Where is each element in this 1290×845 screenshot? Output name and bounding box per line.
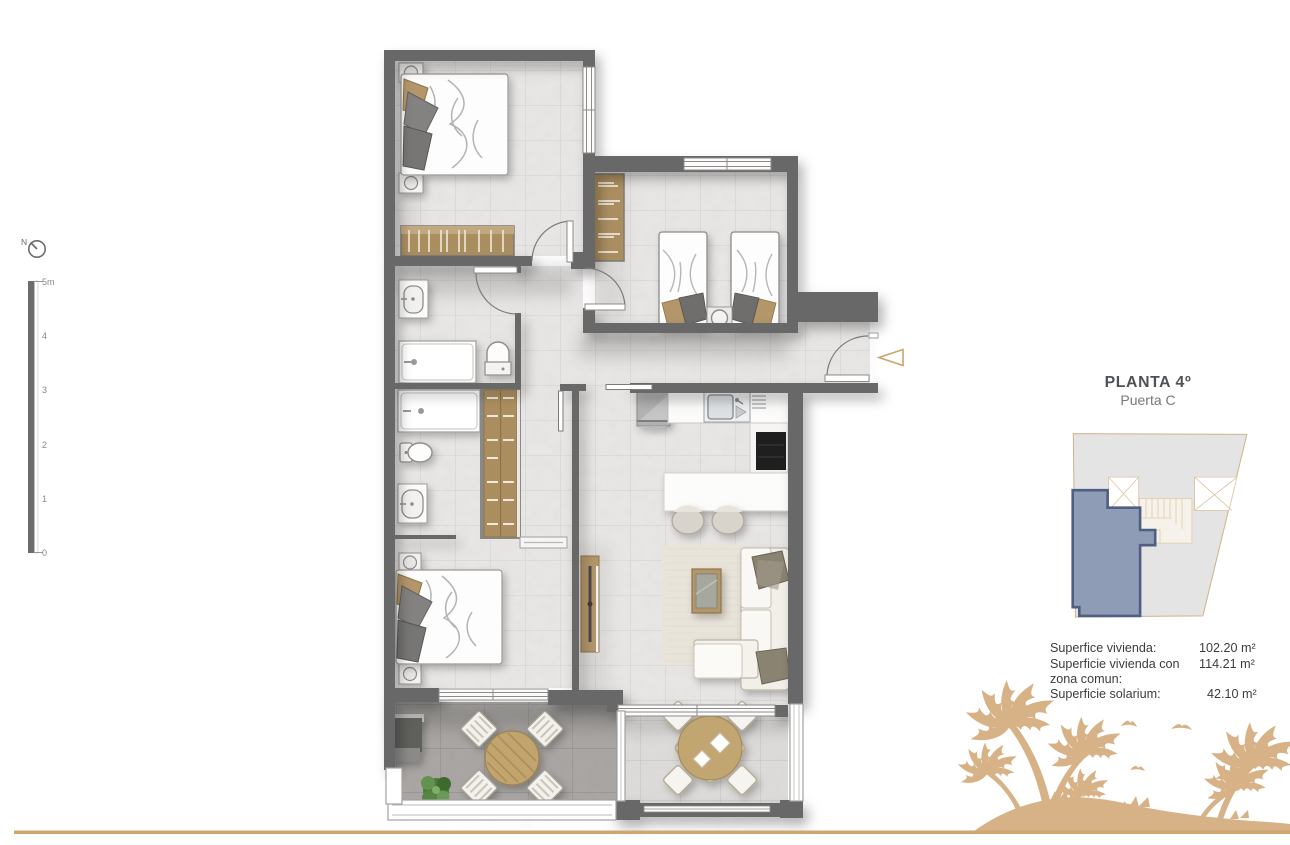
svg-text:Superficie vivienda con: Superficie vivienda con [1050, 657, 1180, 671]
svg-text:PLANTA 4º: PLANTA 4º [1105, 374, 1192, 391]
svg-text:102.20 m²: 102.20 m² [1199, 641, 1256, 655]
svg-text:Puerta C: Puerta C [1120, 392, 1175, 408]
svg-text:Superficie solarium:: Superficie solarium: [1050, 687, 1161, 701]
svg-text:3: 3 [42, 385, 47, 395]
svg-text:zona comun:: zona comun: [1050, 672, 1122, 686]
svg-text:2: 2 [42, 440, 47, 450]
svg-text:42.10 m²: 42.10 m² [1207, 687, 1257, 701]
svg-text:114.21 m²: 114.21 m² [1199, 657, 1255, 671]
svg-text:N: N [21, 237, 27, 247]
svg-text:0: 0 [42, 548, 47, 558]
svg-text:1: 1 [42, 494, 47, 504]
svg-text:5m: 5m [42, 277, 55, 287]
svg-text:Superfice vivienda:: Superfice vivienda: [1050, 641, 1156, 655]
svg-text:4: 4 [42, 331, 47, 341]
